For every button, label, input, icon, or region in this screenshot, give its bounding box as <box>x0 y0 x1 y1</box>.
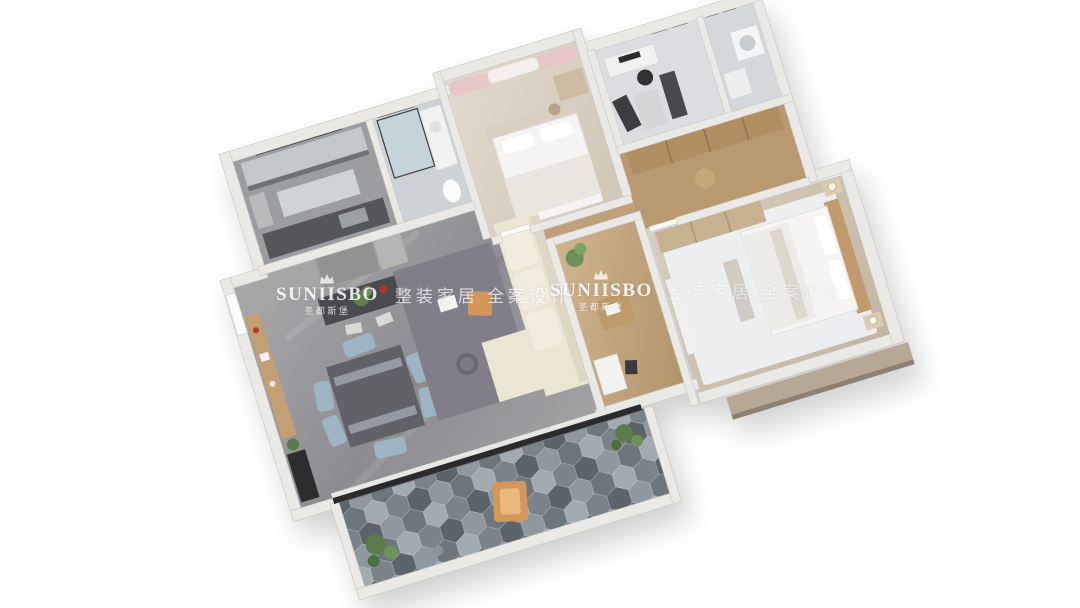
kids-chair <box>625 360 637 374</box>
balcony-hex-tile <box>358 600 387 608</box>
balcony-hex-tile <box>685 398 714 429</box>
balcony-hex-tile <box>466 567 495 598</box>
balcony-hex-tile <box>444 574 473 605</box>
floorplan-root <box>180 0 942 608</box>
balcony-hex-tile <box>696 435 725 466</box>
balcony-hex-tile <box>691 457 720 488</box>
balcony-hex-tile <box>423 580 452 608</box>
balcony-hex-tile <box>616 521 645 552</box>
balcony-hex-tile <box>686 479 715 510</box>
balcony-hex-tile <box>401 587 430 608</box>
balcony-hex-tile <box>708 473 737 504</box>
balcony-hex-tile <box>530 547 559 578</box>
balcony-hex-tile <box>509 554 538 585</box>
balcony-hex-tile <box>573 534 602 565</box>
balcony-hex-tile <box>552 541 581 572</box>
floorplan-render <box>0 0 1080 608</box>
balcony-hex-tile <box>681 501 710 532</box>
balcony-hex-tile <box>680 420 709 451</box>
balcony-hex-tile <box>638 514 667 545</box>
balcony-hex-tile <box>663 405 692 436</box>
balcony-lounge-cushion <box>499 488 520 515</box>
floorplan-render-page: SUNIISBO 圣都斯堡 整装家居 全案设计 SUNIISBO 圣都斯堡 整装… <box>0 0 1080 608</box>
balcony-hex-tile <box>380 593 409 608</box>
accent-armchair <box>468 291 492 315</box>
balcony-hex-tile <box>675 442 704 473</box>
balcony-hex-tile <box>595 528 624 559</box>
balcony-hex-tile <box>487 560 516 591</box>
balcony-hex-tile <box>702 495 731 526</box>
balcony-hex-tile <box>659 508 688 539</box>
